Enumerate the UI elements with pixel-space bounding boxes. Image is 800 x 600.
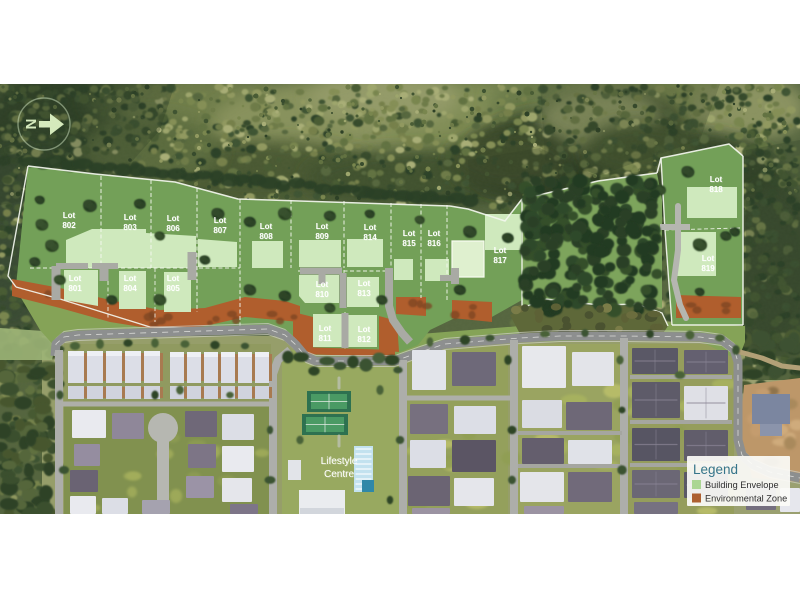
- svg-text:Lot: Lot: [316, 280, 329, 289]
- svg-text:809: 809: [315, 232, 329, 241]
- svg-text:808: 808: [259, 232, 273, 241]
- svg-text:807: 807: [213, 226, 227, 235]
- svg-text:Lot: Lot: [494, 246, 507, 255]
- svg-text:Lot: Lot: [214, 216, 227, 225]
- svg-text:814: 814: [363, 233, 377, 242]
- svg-text:811: 811: [319, 334, 332, 343]
- svg-text:816: 816: [427, 239, 441, 248]
- svg-text:818: 818: [709, 185, 723, 194]
- svg-text:Lot: Lot: [364, 223, 377, 232]
- svg-text:Lot: Lot: [316, 222, 329, 231]
- svg-text:Lot: Lot: [319, 324, 332, 333]
- svg-text:Lot: Lot: [260, 222, 273, 231]
- svg-text:806: 806: [166, 224, 180, 233]
- svg-text:Lot: Lot: [63, 211, 76, 220]
- svg-text:Lot: Lot: [702, 254, 715, 263]
- svg-text:805: 805: [166, 284, 180, 293]
- svg-text:810: 810: [315, 290, 329, 299]
- svg-text:Building Envelope: Building Envelope: [705, 480, 779, 490]
- svg-text:Lot: Lot: [69, 274, 82, 283]
- svg-text:801: 801: [68, 284, 82, 293]
- svg-text:Lot: Lot: [124, 213, 137, 222]
- svg-text:804: 804: [123, 284, 137, 293]
- svg-text:813: 813: [357, 289, 371, 298]
- svg-text:Lot: Lot: [710, 175, 723, 184]
- svg-text:Lifestyle: Lifestyle: [321, 456, 358, 467]
- svg-text:Lot: Lot: [403, 229, 416, 238]
- svg-text:Legend: Legend: [693, 462, 738, 477]
- svg-text:815: 815: [402, 239, 416, 248]
- svg-text:Lot: Lot: [428, 229, 441, 238]
- svg-text:819: 819: [701, 264, 715, 273]
- svg-text:Lot: Lot: [167, 214, 180, 223]
- svg-text:803: 803: [123, 223, 137, 232]
- svg-text:812: 812: [357, 335, 371, 344]
- svg-text:817: 817: [493, 256, 507, 265]
- svg-text:Lot: Lot: [124, 274, 137, 283]
- svg-text:Lot: Lot: [358, 325, 371, 334]
- svg-text:802: 802: [62, 221, 76, 230]
- svg-text:N: N: [22, 119, 39, 130]
- svg-text:Environmental Zone: Environmental Zone: [705, 494, 787, 504]
- svg-text:Lot: Lot: [358, 279, 371, 288]
- svg-text:Lot: Lot: [167, 274, 180, 283]
- svg-text:Centre: Centre: [324, 469, 354, 480]
